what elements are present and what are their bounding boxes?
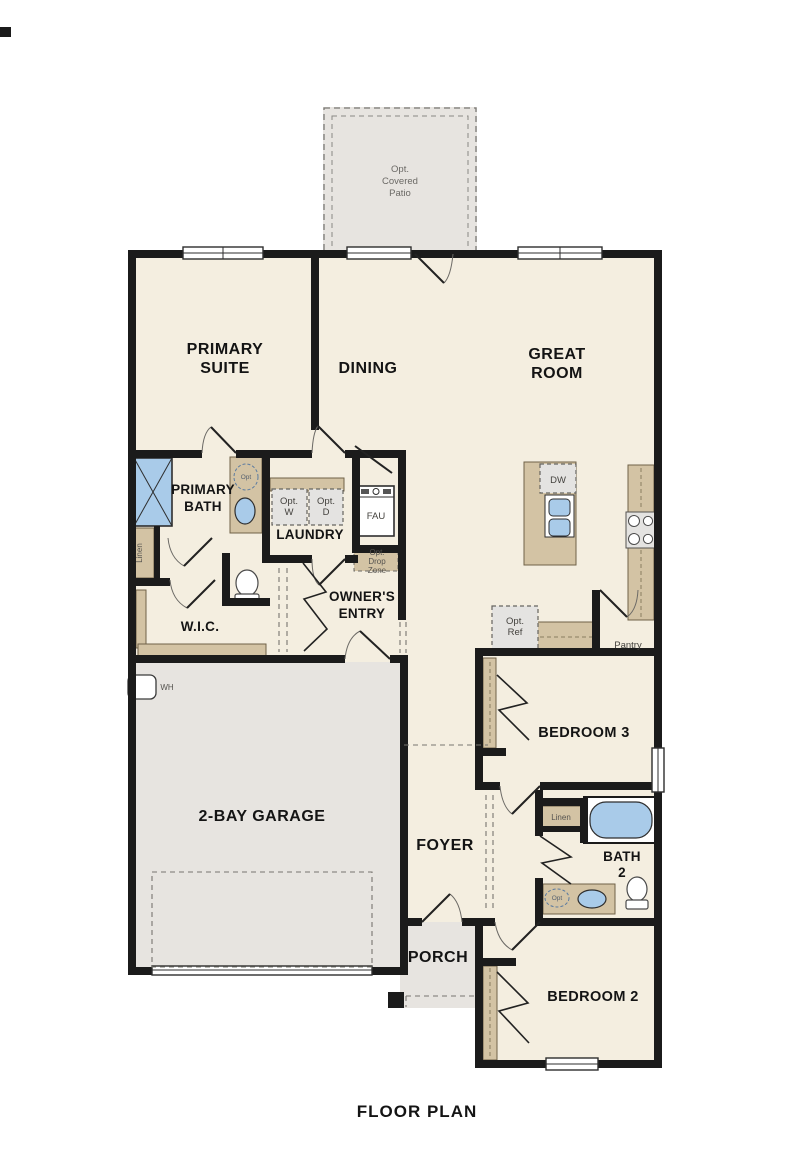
cooktop-icon [626, 512, 656, 548]
shower-icon [134, 458, 172, 526]
room-label-pantry: Pantry [614, 640, 642, 651]
linen-label-bath2: Linen [551, 813, 571, 822]
page-title: FLOOR PLAN [357, 1102, 478, 1121]
porch-post [388, 992, 404, 1008]
room-label-bedroom3: BEDROOM 3 [538, 725, 629, 741]
room-label-garage: 2-BAY GARAGE [199, 808, 326, 825]
room-label-patio: Opt. [391, 164, 409, 175]
room-label-owners-entry: ENTRY [339, 606, 386, 621]
room-label-great-room: ROOM [531, 365, 583, 382]
room-label-primary-bath: BATH [184, 499, 222, 514]
floor-plan-page: Opt. Covered Patio PRIMARY SUITE DINING … [0, 0, 810, 1169]
dryer-label: D [323, 507, 330, 518]
room-label-dining: DINING [339, 360, 398, 377]
opt-sink-label-primary: Opt [241, 474, 252, 481]
room-label-primary-suite: PRIMARY [187, 341, 264, 358]
floor-plan-drawing: Opt. Covered Patio PRIMARY SUITE DINING … [0, 0, 810, 1169]
sink-icon [578, 890, 606, 908]
fau-label: FAU [367, 511, 386, 522]
room-label-primary-suite: SUITE [200, 360, 250, 377]
room-label-great-room: GREAT [528, 346, 585, 363]
page-edge-mark [0, 27, 11, 37]
fridge-label: Opt. [506, 616, 524, 627]
dryer-label: Opt. [317, 496, 335, 507]
room-label-patio: Covered [382, 176, 418, 187]
room-label-porch: PORCH [408, 949, 468, 966]
room-label-primary-bath: PRIMARY [171, 482, 235, 497]
sink-icon [235, 498, 255, 524]
room-label-laundry: LAUNDRY [276, 527, 344, 542]
room-label-bath2: 2 [618, 865, 626, 880]
room-label-bath2: BATH [603, 849, 641, 864]
drop-zone-label: Drop [368, 557, 386, 566]
room-label-foyer: FOYER [416, 837, 474, 854]
opt-sink-label-bath2: Opt [552, 895, 563, 902]
fridge-label: Ref [508, 627, 523, 638]
room-label-patio: Patio [389, 188, 411, 199]
washer-label: W [285, 507, 294, 518]
linen-label-primary: Linen [135, 543, 144, 563]
room-label-bedroom2: BEDROOM 2 [547, 989, 638, 1005]
washer-label: Opt. [280, 496, 298, 507]
bathtub-icon [584, 797, 658, 843]
toilet-bath2-icon [626, 877, 648, 909]
water-heater-label: WH [160, 683, 174, 692]
room-label-wic: W.I.C. [181, 619, 220, 634]
island-sink-icon [545, 495, 574, 537]
drop-zone-label: Zone [368, 566, 387, 575]
drop-zone-label: Opt. [369, 548, 384, 557]
wic-shelf-left [136, 590, 146, 648]
room-label-owners-entry: OWNER'S [329, 589, 395, 604]
dishwasher-label: DW [550, 475, 566, 486]
